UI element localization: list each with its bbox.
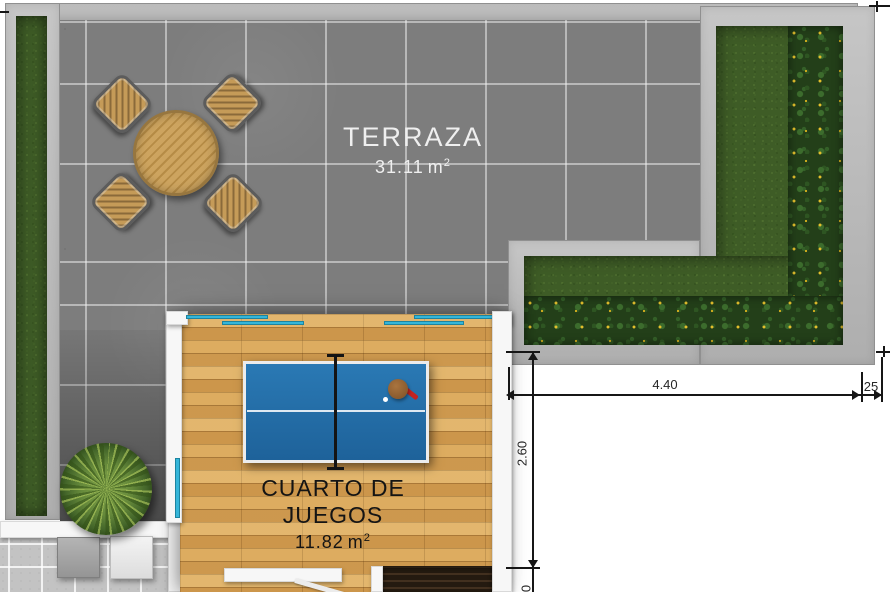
room-wall-bottom [224, 568, 342, 582]
arrowhead [528, 560, 538, 568]
dim-label-horizontal-main: 4.40 [605, 377, 725, 392]
room-area: 31.11m2 [303, 157, 523, 178]
dimension-line-horizontal [508, 394, 883, 396]
paddle-blade [388, 379, 408, 399]
sliding-door-panel [384, 321, 464, 325]
arrowhead [506, 390, 514, 400]
room-wall-right [492, 311, 512, 592]
room-wall-top-left [166, 311, 188, 325]
net [334, 355, 337, 469]
arrowhead [528, 352, 538, 360]
ping-pong-table-group [243, 361, 429, 463]
sliding-door-panel [414, 315, 494, 319]
round-dining-table [133, 110, 219, 196]
dimension-line-vertical [532, 352, 534, 592]
sliding-door-panel [222, 321, 304, 325]
dimension-tick [0, 11, 9, 13]
dim-label-vertical-room: 2.60 [515, 432, 530, 476]
dimension-tick [869, 5, 890, 7]
dim-label-horizontal-small: 25 [859, 379, 883, 394]
flower-border [524, 296, 843, 345]
net-post [327, 354, 344, 357]
floor-plan: 4.40 25 2.60 0 TERRAZA 31.11m2 CUARTO DE… [0, 0, 890, 592]
left-grass-strip [16, 16, 47, 516]
ball [383, 397, 388, 402]
dimension-tick [883, 346, 885, 357]
net-post [327, 467, 344, 470]
dimension-tick [876, 1, 878, 12]
planter-box-gray [57, 537, 100, 578]
room-name: CUARTO DE JUEGOS [233, 475, 433, 529]
sliding-door-panel [186, 315, 268, 319]
room-name: TERRAZA [303, 122, 523, 153]
planter-box-white [110, 536, 153, 579]
stair-jamb [371, 566, 383, 592]
game-room-label-group: CUARTO DE JUEGOS 11.82m2 [233, 475, 433, 553]
stairs [383, 566, 492, 592]
dim-label-vertical-partial: 0 [519, 582, 534, 592]
terrace-label-group: TERRAZA 31.11m2 [303, 122, 523, 178]
window-left [175, 458, 180, 518]
fern-plant [60, 443, 152, 535]
room-area: 11.82m2 [233, 532, 433, 553]
